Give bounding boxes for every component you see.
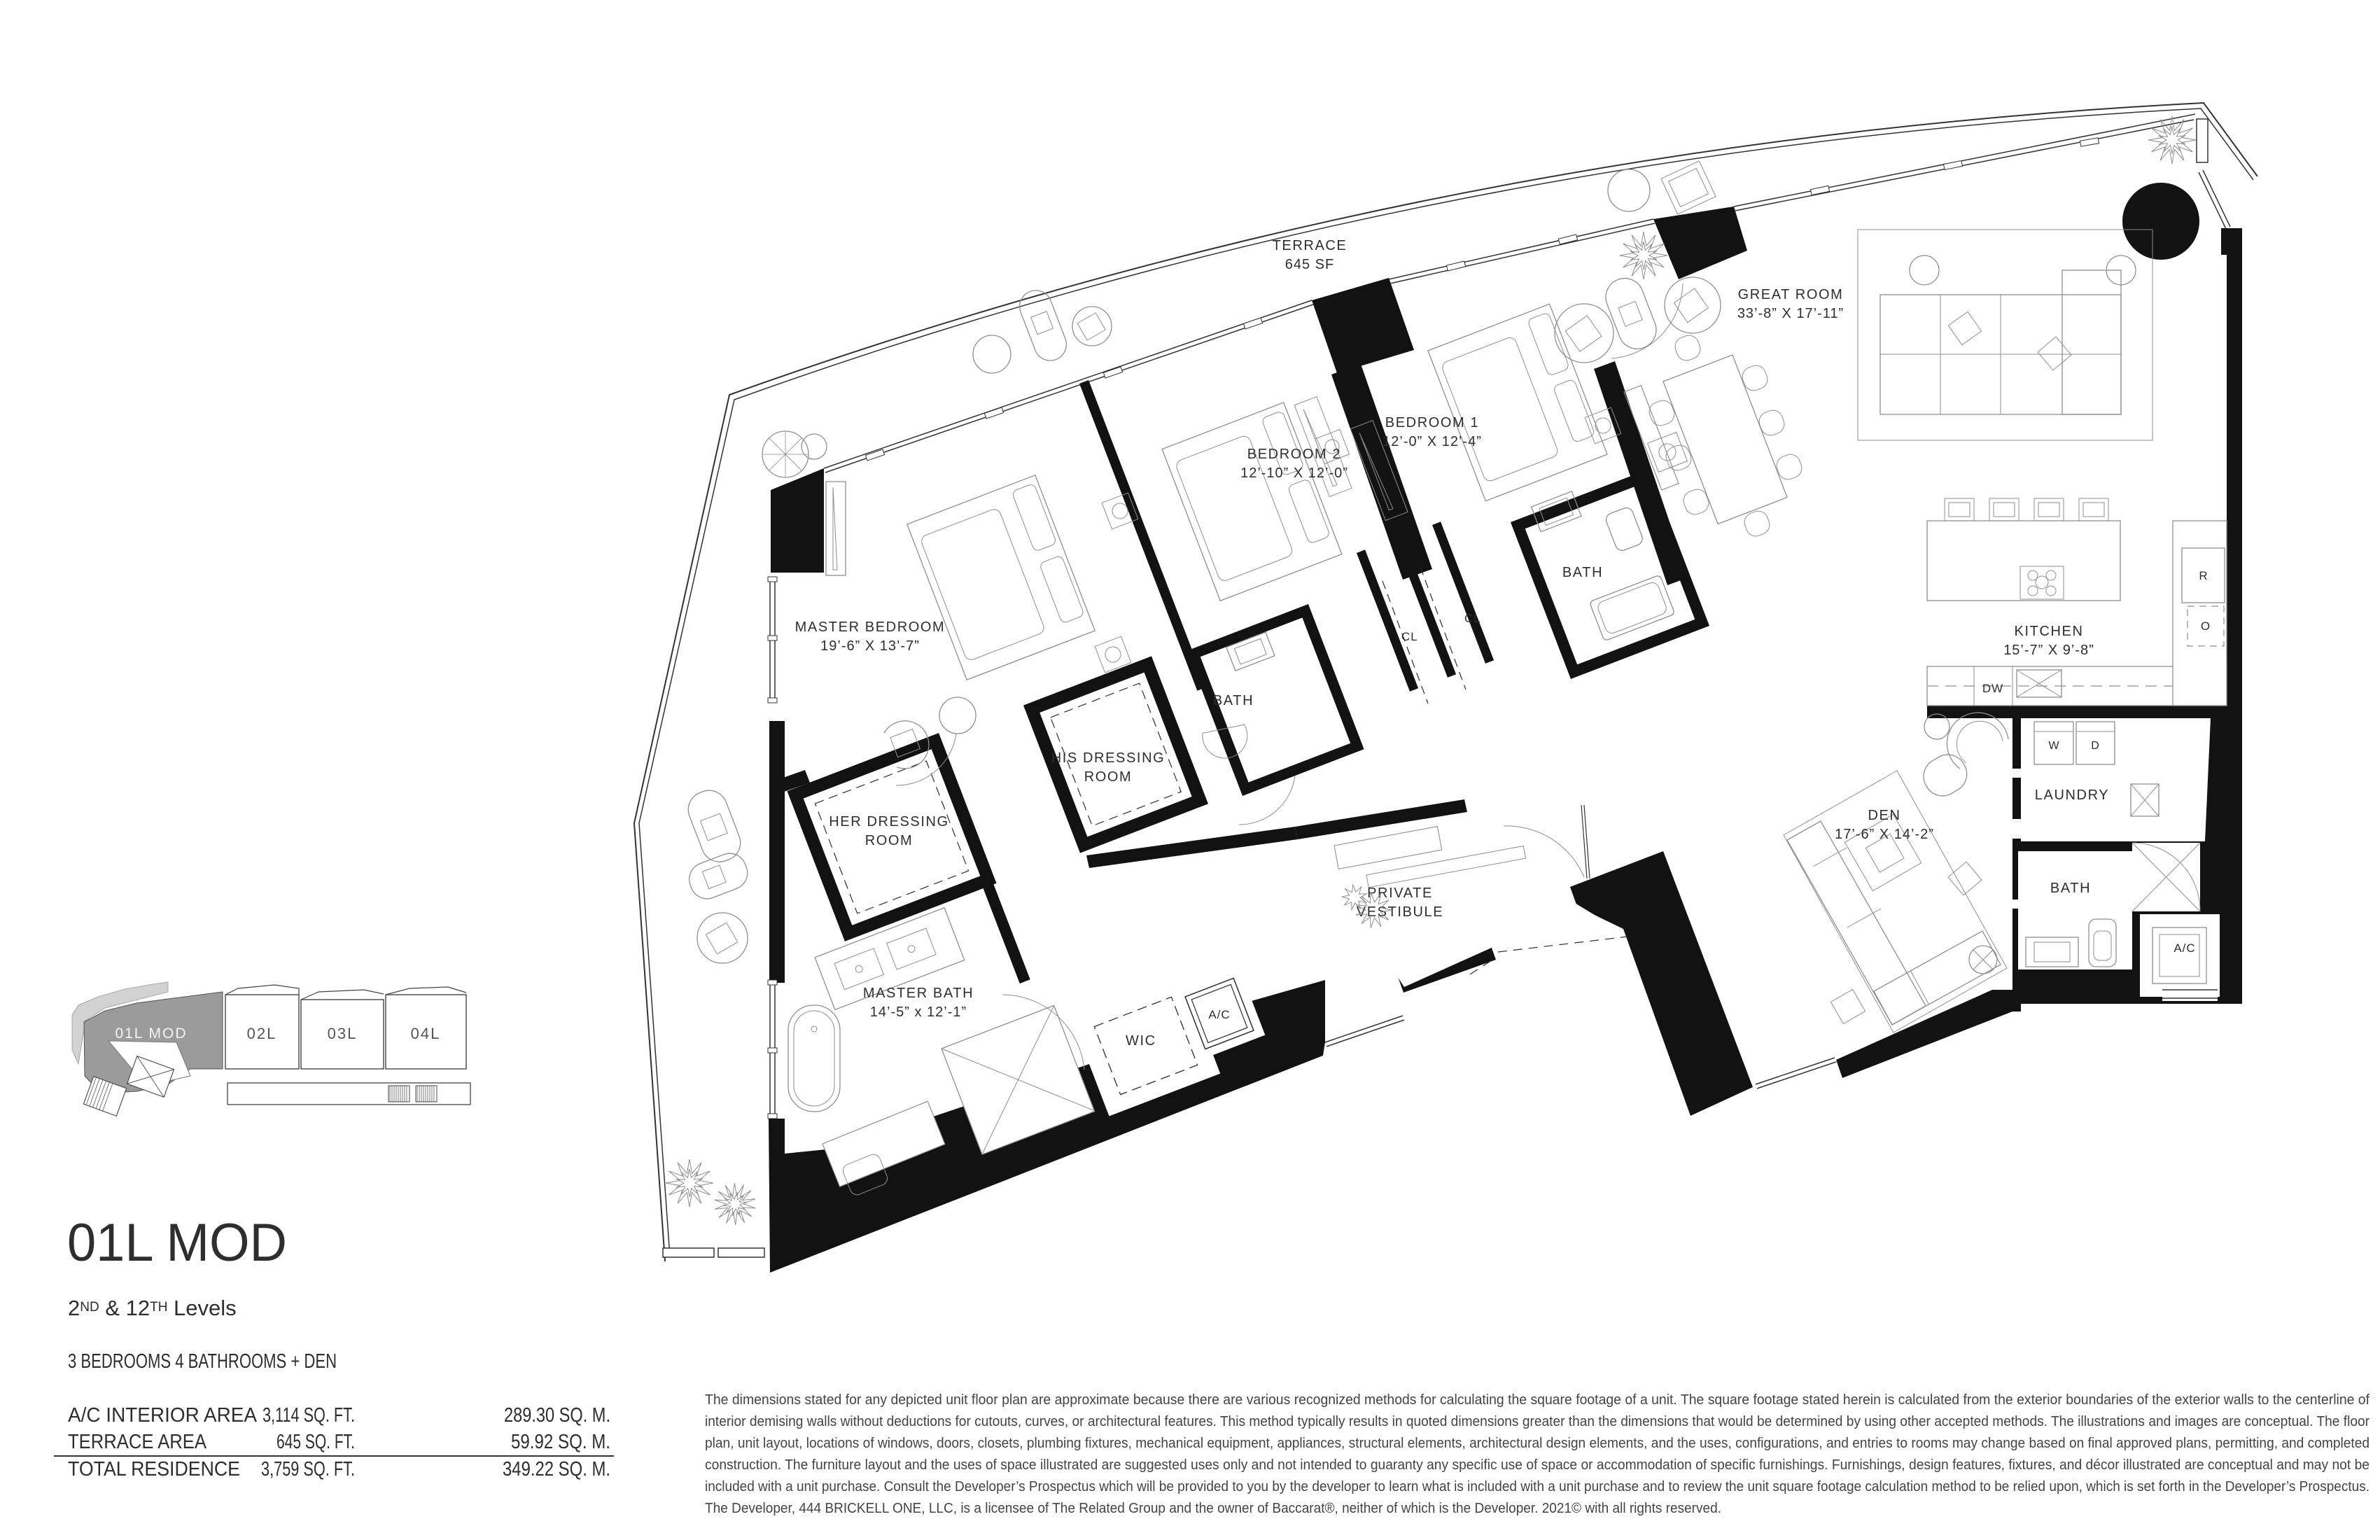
svg-text:TERRACE AREA: TERRACE AREA [68, 1431, 207, 1453]
svg-text:plan, unit layout, locations o: plan, unit layout, locations of windows,… [705, 1436, 2369, 1451]
svg-text:01L MOD: 01L MOD [67, 1213, 287, 1273]
svg-text:HIS DRESSING: HIS DRESSING [1051, 750, 1165, 766]
svg-text:ROOM: ROOM [1084, 769, 1133, 785]
svg-text:A/C: A/C [2173, 941, 2195, 955]
svg-text:The dimensions stated for any: The dimensions stated for any depicted u… [705, 1392, 2369, 1408]
svg-text:17’-6” X 14’-2”: 17’-6” X 14’-2” [1835, 827, 1934, 842]
svg-text:BATH: BATH [1213, 693, 1254, 708]
svg-text:12’-0” X 12’-4”: 12’-0” X 12’-4” [1382, 434, 1482, 449]
svg-text:19’-6” X 13’-7”: 19’-6” X 13’-7” [820, 638, 920, 654]
svg-text:33’-8” X 17’-11”: 33’-8” X 17’-11” [1737, 306, 1844, 321]
svg-text:LAUNDRY: LAUNDRY [2035, 787, 2109, 803]
svg-text:O: O [2201, 619, 2211, 633]
svg-text:3 BEDROOMS 4 BATHROOMS + DEN: 3 BEDROOMS 4 BATHROOMS + DEN [68, 1350, 337, 1373]
svg-text:12’-10” X 12’-0”: 12’-10” X 12’-0” [1240, 465, 1348, 481]
svg-text:04L: 04L [411, 1025, 441, 1042]
svg-text:59.92 SQ. M.: 59.92 SQ. M. [511, 1431, 610, 1453]
svg-text:15’-7” X 9’-8”: 15’-7” X 9’-8” [2003, 643, 2094, 658]
svg-text:The Developer, 444 BRICKELL ON: The Developer, 444 BRICKELL ONE, LLC, is… [705, 1501, 1721, 1516]
svg-text:D: D [2091, 740, 2099, 752]
svg-text:645 SF: 645 SF [1285, 257, 1334, 272]
svg-text:A/C: A/C [1208, 1008, 1230, 1021]
svg-text:CL: CL [1464, 612, 1481, 625]
svg-text:ROOM: ROOM [865, 833, 913, 848]
svg-text:KITCHEN: KITCHEN [2015, 624, 2084, 639]
svg-text:349.22 SQ. M.: 349.22 SQ. M. [503, 1458, 610, 1480]
svg-text:interior demising walls withou: interior demising walls without deductio… [705, 1414, 2369, 1429]
svg-text:HER DRESSING: HER DRESSING [829, 814, 948, 829]
svg-text:DEN: DEN [1868, 808, 1900, 823]
svg-text:3,114 SQ. FT.: 3,114 SQ. FT. [262, 1404, 355, 1427]
svg-text:GREAT ROOM: GREAT ROOM [1738, 287, 1844, 302]
svg-text:BATH: BATH [2050, 881, 2091, 896]
svg-text:01L MOD: 01L MOD [115, 1025, 187, 1042]
svg-text:A/C INTERIOR AREA: A/C INTERIOR AREA [68, 1404, 258, 1427]
svg-text:CL: CL [1401, 630, 1418, 643]
svg-text:BEDROOM 2: BEDROOM 2 [1247, 447, 1341, 462]
svg-text:BATH: BATH [1562, 565, 1603, 580]
svg-text:02L: 02L [247, 1025, 277, 1042]
svg-text:03L: 03L [328, 1025, 358, 1042]
svg-text:MASTER BATH: MASTER BATH [863, 986, 974, 1001]
svg-text:construction. The furniture la: construction. The furniture layout and t… [705, 1457, 2369, 1473]
svg-text:included with a unit purchase.: included with a unit purchase. Consult t… [705, 1479, 2369, 1494]
svg-text:W: W [2048, 740, 2059, 752]
svg-text:3,759 SQ. FT.: 3,759 SQ. FT. [261, 1458, 355, 1480]
svg-text:TOTAL RESIDENCE: TOTAL RESIDENCE [68, 1458, 240, 1480]
svg-text:TERRACE: TERRACE [1273, 238, 1347, 253]
svg-text:WIC: WIC [1126, 1033, 1156, 1049]
svg-text:645 SQ. FT.: 645 SQ. FT. [276, 1431, 355, 1453]
svg-text:289.30 SQ. M.: 289.30 SQ. M. [504, 1404, 610, 1427]
svg-text:BEDROOM 1: BEDROOM 1 [1385, 415, 1479, 430]
svg-text:MASTER BEDROOM: MASTER BEDROOM [795, 619, 946, 635]
svg-text:DW: DW [1982, 682, 2003, 695]
svg-text:R: R [2199, 569, 2208, 582]
svg-text:14’-5” x 12’-1”: 14’-5” x 12’-1” [870, 1004, 967, 1020]
